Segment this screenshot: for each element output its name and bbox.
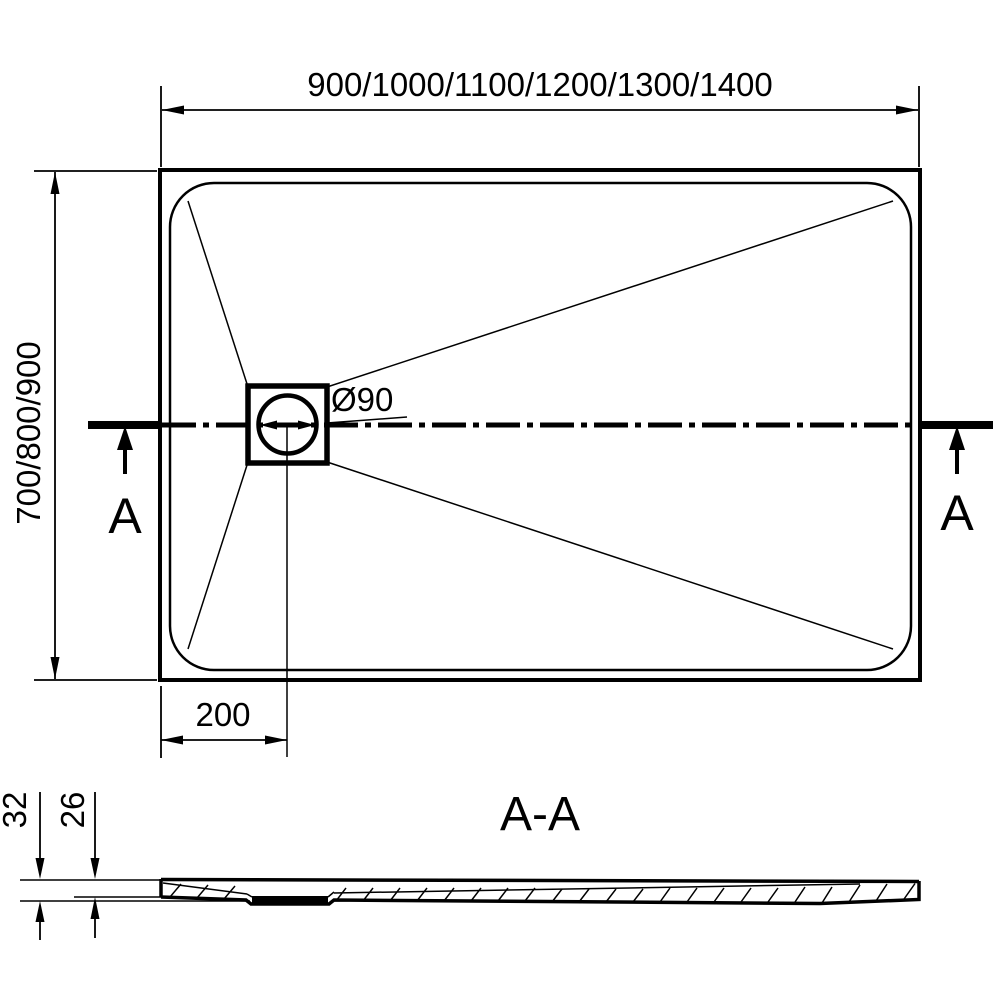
shower-tray-technical-drawing: 900/1000/1100/1200/1300/1400 700/800/900: [0, 0, 1000, 1000]
section-marker-right: A: [940, 426, 974, 541]
slope-line-bottom-left: [188, 462, 248, 649]
section-title: A-A: [500, 788, 580, 841]
arrowhead-right-icon: [265, 736, 287, 745]
plan-view: 900/1000/1100/1200/1300/1400 700/800/900: [10, 66, 993, 758]
drain-arrow-left-icon: [260, 421, 277, 430]
arrowhead-left-icon: [162, 106, 184, 115]
drawing-sheet: 900/1000/1100/1200/1300/1400 700/800/900: [0, 0, 1000, 1000]
drain: Ø90: [248, 381, 407, 463]
section-marker-right-label: A: [940, 485, 974, 541]
drain-arrow-right-icon: [298, 421, 315, 430]
slope-line-top-left: [188, 201, 248, 387]
width-dimension-label: 900/1000/1100/1200/1300/1400: [307, 66, 773, 103]
arrowhead-up-icon: [36, 901, 45, 922]
section-arrow-up-icon: [117, 426, 133, 450]
arrowhead-down-icon: [36, 858, 45, 879]
arrowhead-left-icon: [161, 736, 183, 745]
slope-line-bottom-right: [327, 462, 893, 649]
arrowhead-top-icon: [51, 172, 60, 194]
drain-offset-dimension: 200: [161, 425, 287, 758]
arrowhead-down-icon: [91, 858, 100, 879]
inner-height-dimension: 26: [54, 792, 100, 938]
depth-dimension-label: 700/800/900: [10, 341, 47, 525]
width-dimension: 900/1000/1100/1200/1300/1400: [161, 66, 919, 167]
arrowhead-bottom-icon: [51, 657, 60, 679]
tray-section-profile: [161, 879, 919, 904]
section-marker-left: A: [108, 426, 142, 544]
drain-offset-label: 200: [195, 696, 250, 733]
inner-height-label: 26: [54, 792, 91, 829]
section-arrow-up-icon: [949, 426, 965, 450]
slope-line-top-right: [327, 201, 893, 387]
profile-top-edge: [161, 880, 919, 882]
overall-height-label: 32: [0, 792, 33, 829]
section-view: A-A 32 26: [0, 788, 919, 940]
profile-slope-right: [334, 884, 860, 893]
arrowhead-right-icon: [896, 106, 918, 115]
overall-height-dimension: 32: [0, 792, 45, 940]
drain-diameter-label: Ø90: [331, 381, 393, 418]
section-marker-left-label: A: [108, 488, 142, 544]
